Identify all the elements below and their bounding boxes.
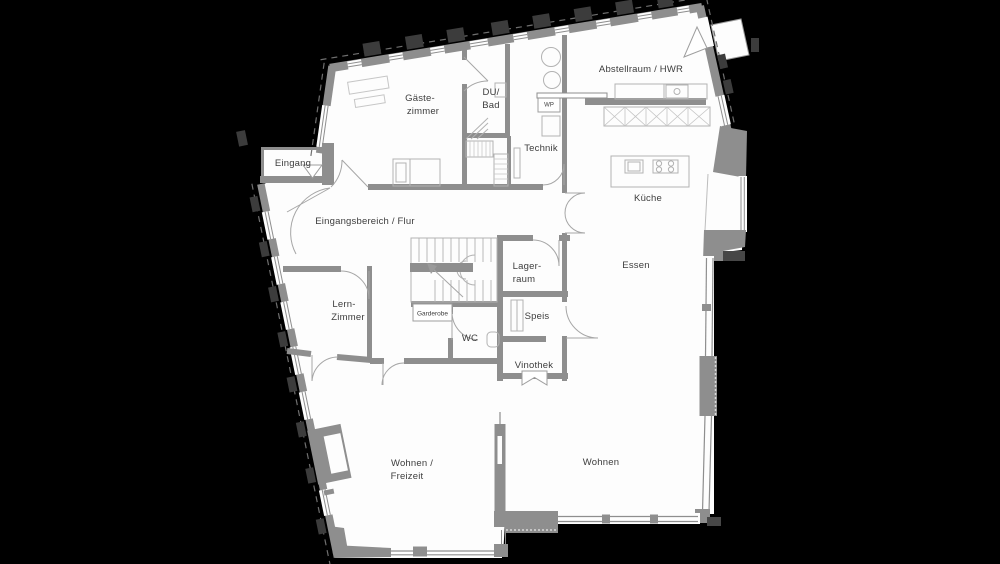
room-label-lern-2: Zimmer [331, 312, 364, 323]
room-label-gaestezimmer-1: Gäste- [405, 93, 435, 104]
room-label-lager-2: raum [513, 274, 535, 285]
room-label-garderobe: Garderobe [417, 311, 448, 318]
room-label-speis: Speis [525, 311, 550, 322]
room-label-lern-1: Lern- [332, 299, 355, 310]
room-label-dubad-1: DU/ [483, 87, 500, 98]
room-label-essen: Essen [622, 260, 649, 271]
room-label-wohnen: Wohnen [583, 457, 619, 468]
room-label-lager-1: Lager- [513, 261, 542, 272]
room-label-wp: WP [544, 103, 554, 109]
spur-wall [495, 412, 506, 516]
room-label-wc: WC [462, 333, 478, 344]
room-label-technik: Technik [524, 143, 558, 154]
sliding-door-leaf [537, 93, 607, 98]
room-label-wohnen-freizeit-2: Freizeit [391, 471, 424, 482]
room-label-flur: Eingangsbereich / Flur [315, 216, 414, 227]
floor-plan: Eingang Gäste- zimmer DU/ Bad Technik WP… [0, 0, 1000, 564]
room-label-wohnen-freizeit-1: Wohnen / [391, 458, 433, 469]
room-label-gaestezimmer-2: zimmer [407, 106, 439, 117]
room-label-eingang: Eingang [275, 158, 311, 169]
room-label-dubad-2: Bad [482, 100, 500, 111]
room-label-abstellraum: Abstellraum / HWR [599, 64, 683, 75]
room-label-kueche: Küche [634, 193, 662, 204]
room-label-vinothek: Vinothek [515, 360, 553, 371]
